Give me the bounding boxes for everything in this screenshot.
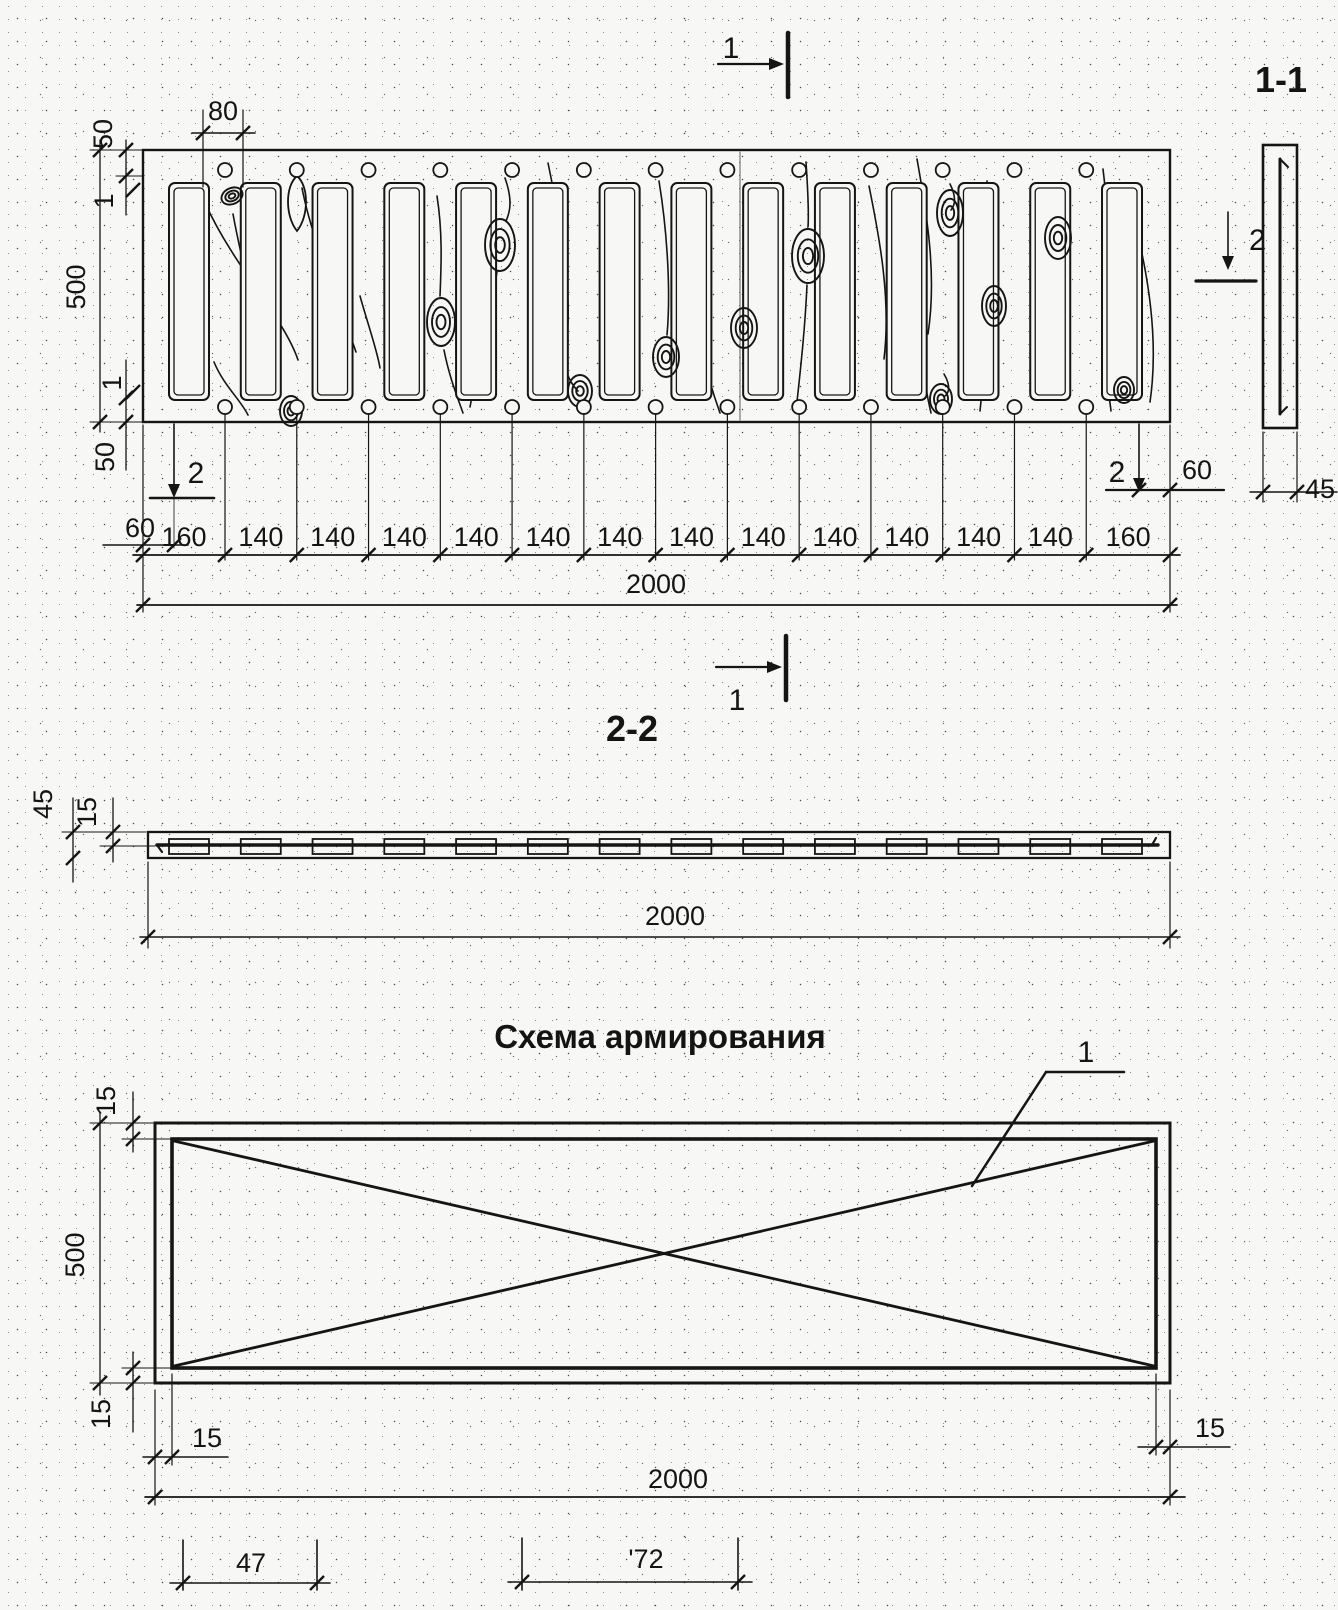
dim-label-chain-segment: 140 [525,522,570,552]
dim-label-chain-segment: 140 [454,522,499,552]
cut-mark-1-top-label: 1 [723,32,740,65]
dim-label-2-2-cover-15: 15 [72,797,102,827]
section-1-1-title: 1-1 [1255,59,1307,100]
section-1-1-view [1196,145,1337,502]
drawing-geometry: 1601401401401401401401401401401401401401… [62,33,1337,1590]
dim-label-scheme-cover-top-15: 15 [91,1086,121,1116]
cut-mark-1-bottom-label: 1 [729,684,746,717]
dim-label-scheme-cover-right-15: 15 [1195,1413,1225,1443]
dim-label-chain-segment: 140 [1028,522,1073,552]
scheme-callout-1-label: 1 [1078,1036,1095,1069]
dim-label-bar-b-72: '72 [628,1544,663,1574]
dim-label-chain-segment: 140 [669,522,714,552]
dim-label-chain-segment: 140 [597,522,642,552]
dim-label-chain-segment: 140 [238,522,283,552]
dim-label-chain-segment: 160 [161,522,206,552]
plan-panel-outline [143,150,1170,422]
dim-label-edge-offset-left-60: 60 [125,513,155,543]
dim-label-hairline-top-1: 1 [89,193,119,208]
cut-mark-2-right-label: 2 [1109,456,1126,489]
dim-label-scheme-cover-left-15: 15 [192,1423,222,1453]
dim-label-hairline-bottom-1: 1 [97,375,127,390]
dim-label-edge-offset-right-60: 60 [1182,455,1212,485]
reinforcement-scheme-view [90,1072,1230,1590]
section-2-2-title: 2-2 [606,708,658,749]
dim-label-top-margin-50: 50 [88,119,118,149]
dim-label-height-500: 500 [61,264,91,309]
dim-label-bar-a-47: 47 [236,1548,266,1578]
cut-mark-2-on-1-1-label: 2 [1249,224,1266,257]
section-2-2-view [62,798,1180,948]
dim-label-chain-segment: 140 [956,522,1001,552]
dim-label-1-1-width-45: 45 [1305,474,1335,504]
dim-label-chain-segment: 140 [812,522,857,552]
dim-label-scheme-height-500: 500 [60,1232,90,1277]
dim-label-chain-segment: 140 [884,522,929,552]
dim-label-scheme-cover-bottom-15: 15 [86,1399,116,1429]
technical-drawing-canvas: 1601401401401401401401401401401401401401… [0,0,1338,1610]
cut-mark-2-left-label: 2 [188,457,205,490]
dim-label-chain-segment: 160 [1106,522,1151,552]
dim-label-2-2-thickness-45: 45 [28,789,58,819]
dim-label-scheme-overall-2000: 2000 [648,1464,708,1494]
dim-label-chain-segment: 140 [741,522,786,552]
dim-label-plan-overall-2000: 2000 [626,569,686,599]
dim-label-bottom-margin-50: 50 [90,442,120,472]
dim-label-chain-segment: 140 [382,522,427,552]
dim-label-2-2-overall-2000: 2000 [645,901,705,931]
cut-mark-1-bottom [716,636,786,700]
dim-label-chain-segment: 140 [310,522,355,552]
dim-label-slot-width-80: 80 [208,96,238,126]
reinforcement-scheme-title: Схема армирования [494,1018,826,1055]
